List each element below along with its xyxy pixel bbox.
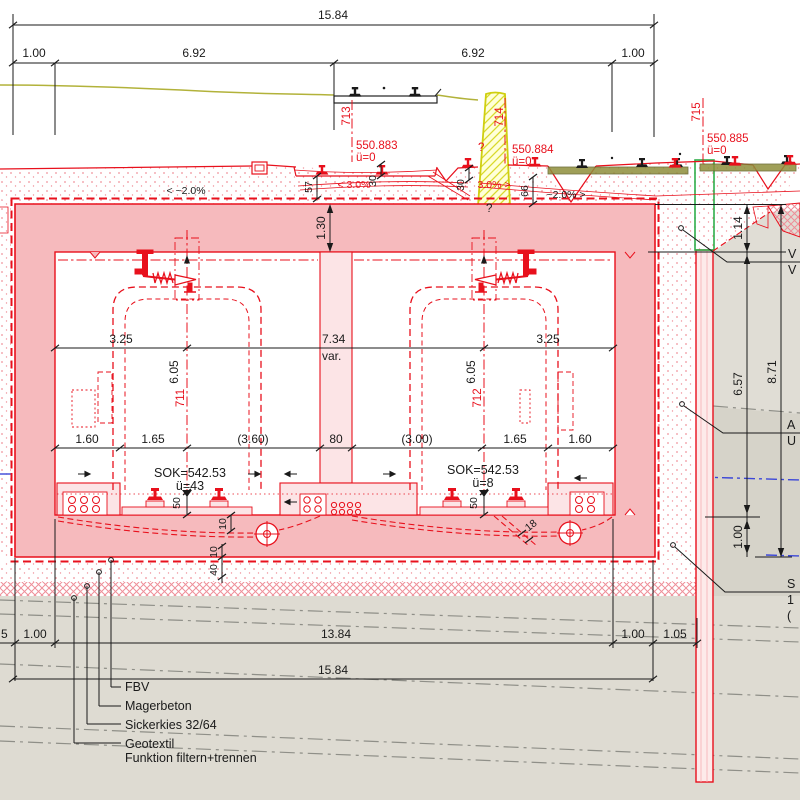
- dim-b3: 1.00: [621, 627, 645, 641]
- cable-duct-left: [57, 483, 120, 515]
- note-clipped-s: S: [787, 577, 795, 591]
- dim-b4: 1.05: [663, 627, 687, 641]
- axis-number-712: 712: [472, 388, 484, 407]
- sok-right: SOK=542.53: [447, 463, 519, 477]
- sok-right-ue: ü=8: [472, 476, 493, 490]
- pile-wall: [695, 160, 714, 782]
- dim-d5: (3.00): [401, 432, 432, 446]
- dim-w-left: 3.25: [109, 332, 133, 346]
- note-geotextil-2: Funktion filtern+trennen: [125, 751, 257, 765]
- note-clipped-1: 1: [787, 593, 794, 607]
- note-clipped-u: U: [787, 434, 796, 448]
- drawing-canvas: 713 714 715 711 712 550.883 ü=0 550.884 …: [0, 0, 800, 800]
- backfill-left-strip: [0, 200, 11, 557]
- note-clipped-a: A: [787, 418, 796, 432]
- dim-b1: 1.00: [23, 627, 47, 641]
- tunnel-structure: [12, 199, 659, 562]
- dim-d2: 1.65: [141, 432, 165, 446]
- sok-left: SOK=542.53: [154, 466, 226, 480]
- dim-40: 40: [208, 564, 220, 576]
- dim-b0: 5: [1, 627, 8, 641]
- note-magerbeton: Magerbeton: [125, 699, 192, 713]
- level-713: 550.883: [356, 140, 398, 152]
- bored-pile: [696, 250, 713, 782]
- dim-t2: 6.92: [182, 46, 206, 60]
- dim-114: 1.14: [731, 216, 745, 240]
- dim-57: 57: [303, 181, 315, 193]
- slope-right: ~2.0% >: [546, 189, 585, 201]
- dim-66: 66: [519, 185, 531, 197]
- dim-d3: (3.60): [237, 432, 268, 446]
- note-clipped-v1: V: [788, 247, 797, 261]
- axis-number-715: 715: [691, 102, 703, 121]
- dim-r100: 1.00: [731, 525, 745, 549]
- dim-w-var: var.: [322, 349, 341, 363]
- backfill-right-strip: [658, 268, 694, 560]
- dim-d7: 1.60: [568, 432, 592, 446]
- slope-mid-right: 3.0% >: [478, 179, 511, 191]
- level-714: 550.884: [512, 144, 554, 156]
- level-714-ue: ü=0: [512, 156, 532, 168]
- dim-871: 8.71: [765, 360, 779, 384]
- note-clipped-v2: V: [788, 263, 797, 277]
- dim-top-total: 15.84: [318, 8, 348, 22]
- dim-50-right: 50: [468, 497, 480, 509]
- dim-t3: 6.92: [461, 46, 485, 60]
- slope-mid-left: < 3.0%: [338, 179, 371, 191]
- slope-left: < ~2.0%: [166, 185, 205, 197]
- question-mark-red: ?: [478, 142, 484, 154]
- tunnel-cross-section-drawing: 713 714 715 711 712 550.883 ü=0 550.884 …: [0, 0, 800, 800]
- dim-t1: 1.00: [22, 46, 46, 60]
- dim-30b: 30: [455, 179, 467, 191]
- axis-number-713: 713: [341, 106, 353, 125]
- water-level-line-low: [766, 555, 800, 556]
- dim-h-right: 6.05: [464, 360, 478, 384]
- axis-number-714: 714: [494, 107, 506, 127]
- dim-b2: 13.84: [321, 627, 351, 641]
- dim-d1: 1.60: [75, 432, 99, 446]
- dim-50-left: 50: [171, 497, 183, 509]
- surface-culvert: [252, 162, 267, 174]
- level-715-ue: ü=0: [707, 145, 727, 157]
- dim-roof: 1.30: [314, 216, 328, 240]
- sickerkies-band: [0, 582, 696, 596]
- dim-t4: 1.00: [621, 46, 645, 60]
- question-mark-yellow: ?: [486, 203, 492, 215]
- note-sickerkies: Sickerkies 32/64: [125, 718, 217, 732]
- dim-w-center: 7.34: [322, 332, 346, 346]
- note-fbv: FBV: [125, 680, 150, 694]
- dim-10a: 10: [217, 518, 229, 530]
- dim-w-right: 3.25: [536, 332, 560, 346]
- level-715: 550.885: [707, 133, 749, 145]
- note-geotextil-1: Geotextil: [125, 737, 174, 751]
- axis-number-711: 711: [175, 389, 187, 407]
- dim-h-left: 6.05: [167, 360, 181, 384]
- dim-d4: 80: [329, 432, 343, 446]
- dim-10b: 10: [208, 546, 220, 558]
- dim-657: 6.57: [731, 372, 745, 396]
- magerbeton-band: [0, 561, 696, 582]
- level-713-ue: ü=0: [356, 152, 376, 164]
- dim-bottom-total: 15.84: [318, 663, 348, 677]
- dim-d6: 1.65: [503, 432, 527, 446]
